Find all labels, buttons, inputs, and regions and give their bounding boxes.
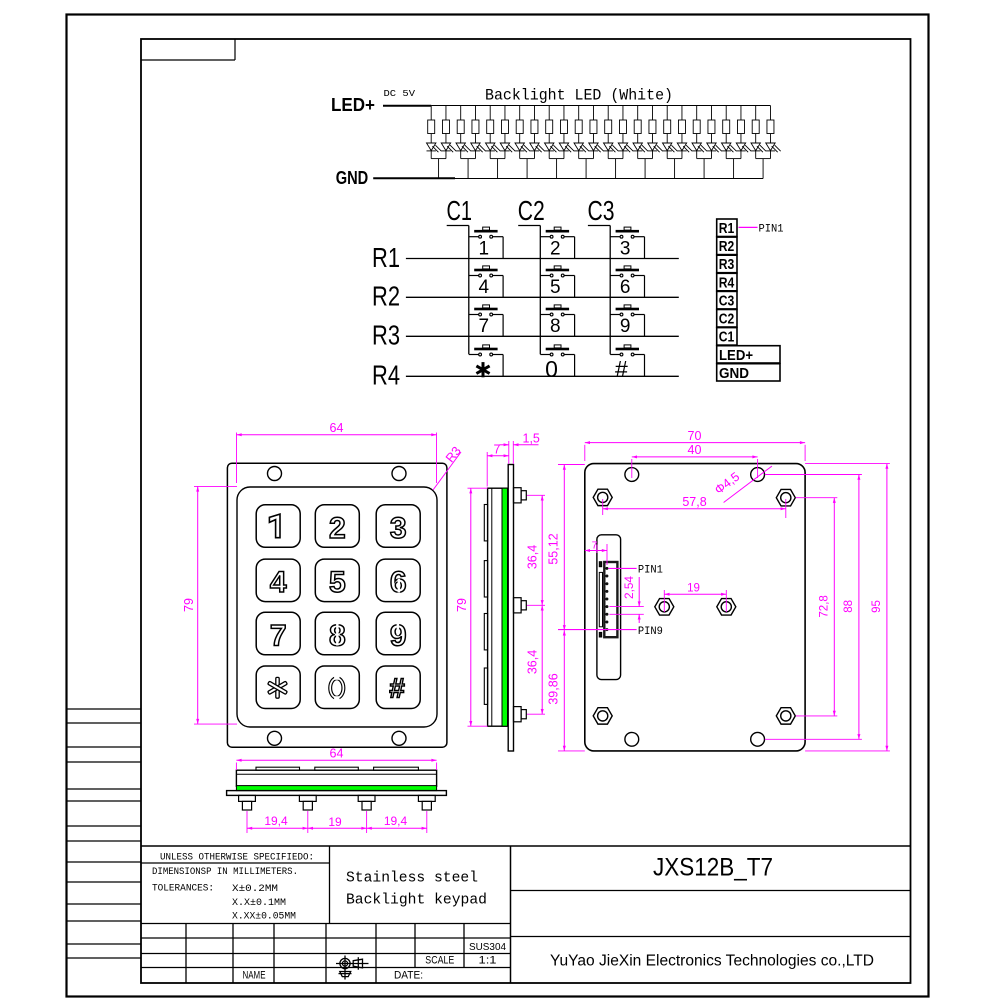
- svg-text:1:1: 1:1: [479, 955, 497, 967]
- svg-text:79: 79: [182, 598, 196, 612]
- svg-text:5: 5: [329, 566, 346, 599]
- svg-text:C2: C2: [719, 312, 735, 328]
- svg-text:PIN9: PIN9: [638, 626, 663, 638]
- svg-text:95: 95: [871, 600, 883, 613]
- svg-text:Stainless steel: Stainless steel: [346, 870, 478, 887]
- svg-text:5: 5: [550, 277, 561, 298]
- svg-text:1: 1: [479, 238, 490, 259]
- svg-text:R4: R4: [372, 360, 400, 391]
- svg-text:GND: GND: [336, 168, 369, 188]
- svg-text:Backlight keypad: Backlight keypad: [346, 892, 487, 909]
- svg-text:70: 70: [688, 429, 702, 443]
- svg-text:DC 5V: DC 5V: [384, 88, 416, 99]
- svg-text:Backlight LED (White): Backlight LED (White): [485, 87, 673, 105]
- svg-text:2: 2: [329, 512, 346, 545]
- svg-text:3: 3: [390, 512, 407, 545]
- svg-text:36,4: 36,4: [525, 545, 539, 569]
- svg-text:DATE:: DATE:: [394, 970, 423, 982]
- svg-text:R2: R2: [719, 239, 735, 255]
- svg-text:TOLERANCES:: TOLERANCES:: [152, 883, 214, 895]
- svg-text:1,5: 1,5: [523, 431, 540, 445]
- svg-text:7: 7: [479, 316, 490, 337]
- svg-text:C3: C3: [588, 195, 615, 226]
- svg-text:SCALE: SCALE: [425, 955, 454, 967]
- svg-text:C3: C3: [719, 293, 735, 309]
- svg-text:19,4: 19,4: [384, 814, 408, 828]
- svg-text:7: 7: [494, 443, 501, 457]
- svg-text:#: #: [389, 673, 405, 704]
- svg-text:C1: C1: [447, 195, 473, 226]
- svg-text:3: 3: [620, 238, 631, 259]
- svg-text:64: 64: [330, 746, 344, 760]
- svg-text:39,86: 39,86: [546, 673, 560, 704]
- svg-text:19,4: 19,4: [264, 814, 288, 828]
- svg-text:R4: R4: [719, 275, 735, 291]
- svg-text:64: 64: [330, 421, 344, 435]
- svg-text:SUS304: SUS304: [469, 942, 506, 953]
- svg-text:6: 6: [620, 277, 631, 298]
- svg-text:2: 2: [550, 238, 561, 259]
- svg-text:#: #: [615, 356, 628, 382]
- svg-text:PIN1: PIN1: [638, 565, 663, 577]
- svg-text:YuYao JieXin Electronics Techn: YuYao JieXin Electronics Technologies co…: [550, 953, 874, 970]
- svg-text:R1: R1: [719, 221, 735, 237]
- svg-text:X.XX±0.05MM: X.XX±0.05MM: [232, 911, 296, 923]
- svg-text:8: 8: [550, 316, 561, 337]
- svg-text:NAME: NAME: [243, 970, 266, 982]
- svg-text:2,54: 2,54: [622, 576, 636, 599]
- svg-text:GND: GND: [719, 366, 749, 382]
- svg-text:UNLESS OTHERWISE SPECIFIEDO:: UNLESS OTHERWISE SPECIFIEDO:: [160, 852, 314, 864]
- svg-text:R1: R1: [372, 242, 400, 273]
- svg-text:19: 19: [687, 582, 700, 594]
- svg-text:R3: R3: [372, 320, 400, 351]
- svg-text:79: 79: [455, 598, 469, 612]
- svg-text:7: 7: [592, 540, 598, 552]
- svg-text:0: 0: [545, 356, 558, 382]
- svg-text:X±0.2MM: X±0.2MM: [232, 883, 278, 895]
- svg-text:C1: C1: [719, 330, 735, 346]
- svg-text:PIN1: PIN1: [759, 224, 784, 236]
- svg-text:19: 19: [328, 815, 342, 829]
- svg-text:DIMENSIONSP IN MILLIMETERS.: DIMENSIONSP IN MILLIMETERS.: [152, 866, 298, 878]
- svg-text:7: 7: [270, 619, 287, 652]
- svg-text:R3: R3: [719, 257, 735, 273]
- svg-text:36,4: 36,4: [525, 650, 539, 674]
- svg-text:LED+: LED+: [719, 348, 753, 364]
- svg-text:C2: C2: [518, 195, 545, 226]
- svg-text:9: 9: [620, 316, 631, 337]
- svg-text:4: 4: [270, 566, 287, 599]
- svg-text:R2: R2: [372, 281, 400, 312]
- svg-text:57,8: 57,8: [682, 495, 706, 509]
- svg-text:JXS12B_T7: JXS12B_T7: [653, 854, 773, 882]
- svg-text:88: 88: [843, 600, 855, 613]
- svg-text:55,12: 55,12: [546, 533, 560, 564]
- svg-text:72,8: 72,8: [819, 595, 831, 617]
- svg-text:X.X±0.1MM: X.X±0.1MM: [232, 897, 286, 909]
- svg-text:40: 40: [688, 443, 702, 457]
- svg-text:4: 4: [479, 277, 490, 298]
- svg-text:LED+: LED+: [331, 95, 375, 115]
